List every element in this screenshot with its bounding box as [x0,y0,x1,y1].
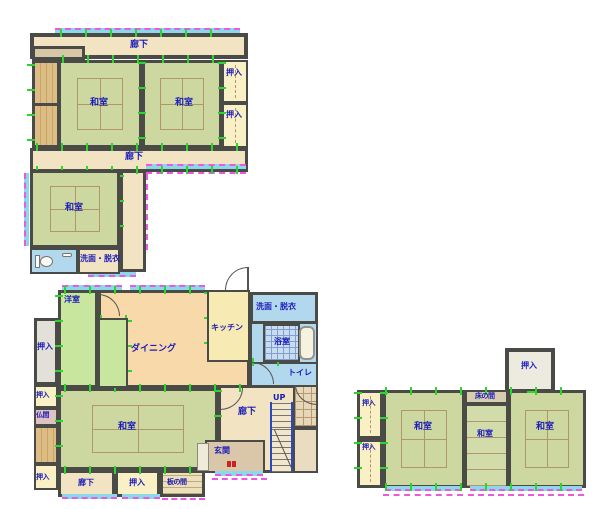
room-label-itanoma: 板の間 [167,479,187,486]
window-strip [122,494,160,499]
room-label-oshiire: 押入 [521,362,537,370]
dashed-opening [468,494,584,496]
tatami-mats [525,410,568,469]
room-label-corridor: 廊下 [78,479,94,487]
room-label-oshiire: 押入 [362,400,375,407]
plan2-entry-lower [293,428,318,473]
room-label-butsuma: 仏間 [36,412,49,419]
room-label-oshiire: 押入 [362,444,375,451]
room-label-kitchen: キッチン [211,324,243,332]
room-label-washitsu: 和室 [65,204,83,213]
room-label-youshitsu: 洋室 [64,296,80,304]
room-label-washitsu: 和室 [414,423,432,432]
plan2-youshitsu-extension [98,318,128,388]
room-label-senmen: 洗面・脱衣 [80,255,120,263]
window-strip [215,471,263,476]
plan1-wood-veranda [32,60,60,148]
room-label-oshiire: 押入 [226,111,242,119]
stairs-up-label: UP [273,394,285,402]
door-leaf [247,267,249,290]
tick-marks [354,392,362,486]
dashed-opening [383,494,463,496]
stairs-diagonal [274,430,294,472]
room-label-corridor: 廊下 [130,41,148,50]
dashed-opening [212,478,267,480]
stairs-lower-flight [270,428,293,472]
plan2-youshitsu [58,290,98,388]
room-label-dining: ダイニング [131,345,176,354]
tick-marks [64,286,204,294]
tick-marks [527,391,535,397]
room-label-oshiire: 押入 [37,343,53,351]
room-label-oshiire: 押入 [129,479,145,487]
window-strip [62,494,117,499]
plan1-toilet-room [30,248,78,274]
stairs-upper-flight [270,402,293,428]
room-label-yokushitsu: 浴室 [274,338,290,346]
floor-plan-canvas: 廊下 和室 和室 押入 押入 廊下 和室 洗面・脱衣 [0,0,600,509]
tick-marks [60,29,220,37]
tick-marks [138,62,146,146]
room-label-washitsu: 和室 [477,430,493,438]
tick-marks [27,64,35,144]
room-label-senmen: 洗面・脱衣 [256,303,296,311]
plan3-washitsu-mid [465,404,508,488]
wood-divider [35,103,57,106]
tick-marks [218,62,226,146]
tick-marks [385,483,583,491]
room-label-toilet: トイレ [288,369,312,377]
plan2-washitsu-big [58,388,218,470]
tick-marks [64,466,214,474]
room-label-washitsu: 和室 [90,99,108,108]
tick-marks [55,295,63,465]
toilet-bowl-icon [40,256,53,267]
room-label-corridor: 廊下 [125,153,143,162]
window-strip [24,173,29,246]
tatami-mats [92,405,184,454]
dashed-opening [146,174,148,250]
room-label-washitsu: 和室 [536,423,554,432]
plan3-washitsu-right [508,390,586,488]
tick-marks [380,392,388,486]
room-label-oshiire: 押入 [226,69,242,77]
room-label-oshiire: 押入 [36,392,49,399]
plan3-washitsu-left [383,390,465,488]
room-label-tokonoma: 床の間 [475,393,495,400]
room-label-washitsu: 和室 [118,423,136,432]
room-label-corridor: 廊下 [238,408,256,417]
tatami-mats [401,410,447,469]
dashed-opening [162,498,205,500]
genkan-red-stamp [227,461,231,467]
door-arc-backdoor [225,267,248,290]
genkan-step [197,443,209,471]
bathtub-icon [299,326,315,360]
room-label-washitsu: 和室 [175,99,193,108]
plan2-genkan [205,440,265,473]
room-label-oshiire: 押入 [36,474,49,481]
sink-icon [62,253,72,257]
room-label-genkan: 玄関 [214,447,230,455]
